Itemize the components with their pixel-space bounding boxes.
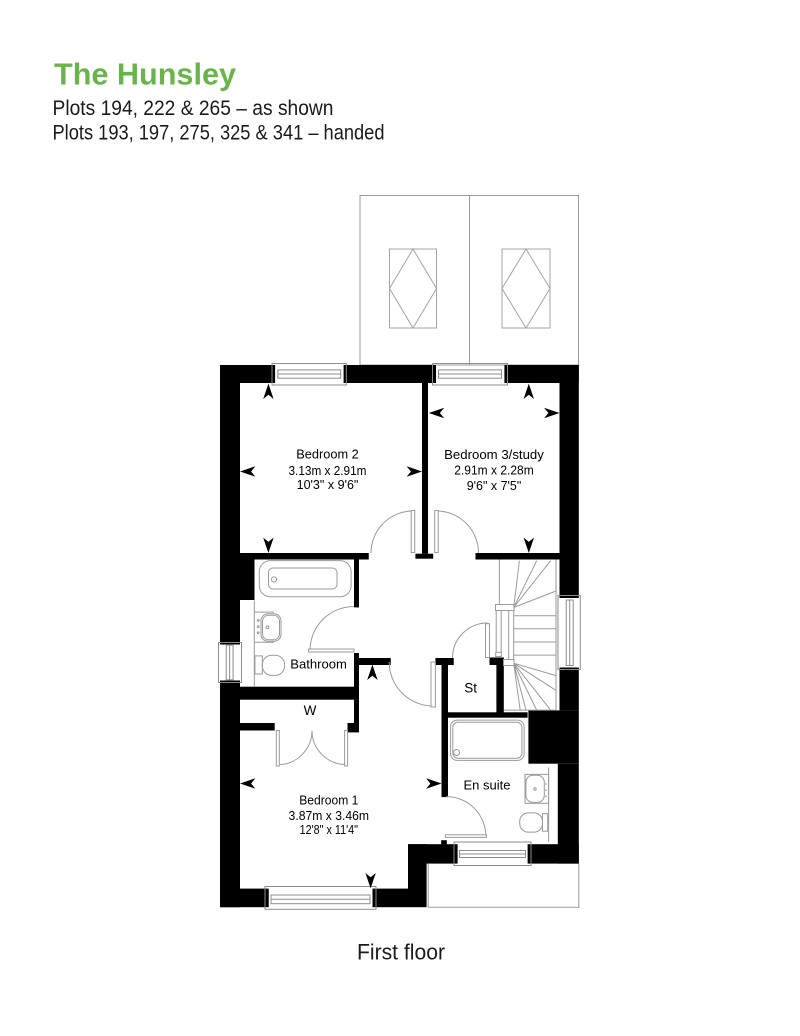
svg-text:St: St	[464, 681, 477, 696]
svg-text:10'3" x 9'6": 10'3" x 9'6"	[297, 477, 359, 492]
svg-text:12'8" x 11'4": 12'8" x 11'4"	[300, 822, 359, 837]
svg-text:Bedroom 3/study: Bedroom 3/study	[444, 447, 544, 462]
svg-text:2.91m x 2.28m: 2.91m x 2.28m	[454, 462, 534, 477]
svg-text:Bedroom 2: Bedroom 2	[296, 447, 359, 462]
svg-text:Plots 194, 222 & 265 – as show: Plots 194, 222 & 265 – as shown	[53, 97, 334, 120]
svg-text:W: W	[304, 703, 317, 718]
svg-text:9'6" x 7'5": 9'6" x 7'5"	[467, 478, 522, 493]
svg-text:3.87m x 3.46m: 3.87m x 3.46m	[289, 808, 370, 823]
svg-text:En suite: En suite	[464, 777, 511, 792]
svg-text:Plots 193, 197, 275, 325 & 341: Plots 193, 197, 275, 325 & 341 – handed	[53, 122, 385, 145]
svg-text:Bedroom 1: Bedroom 1	[299, 793, 358, 808]
svg-text:Bathroom: Bathroom	[290, 657, 347, 672]
svg-text:The Hunsley: The Hunsley	[54, 57, 237, 92]
svg-text:3.13m x 2.91m: 3.13m x 2.91m	[289, 463, 367, 478]
svg-text:First floor: First floor	[357, 940, 445, 965]
